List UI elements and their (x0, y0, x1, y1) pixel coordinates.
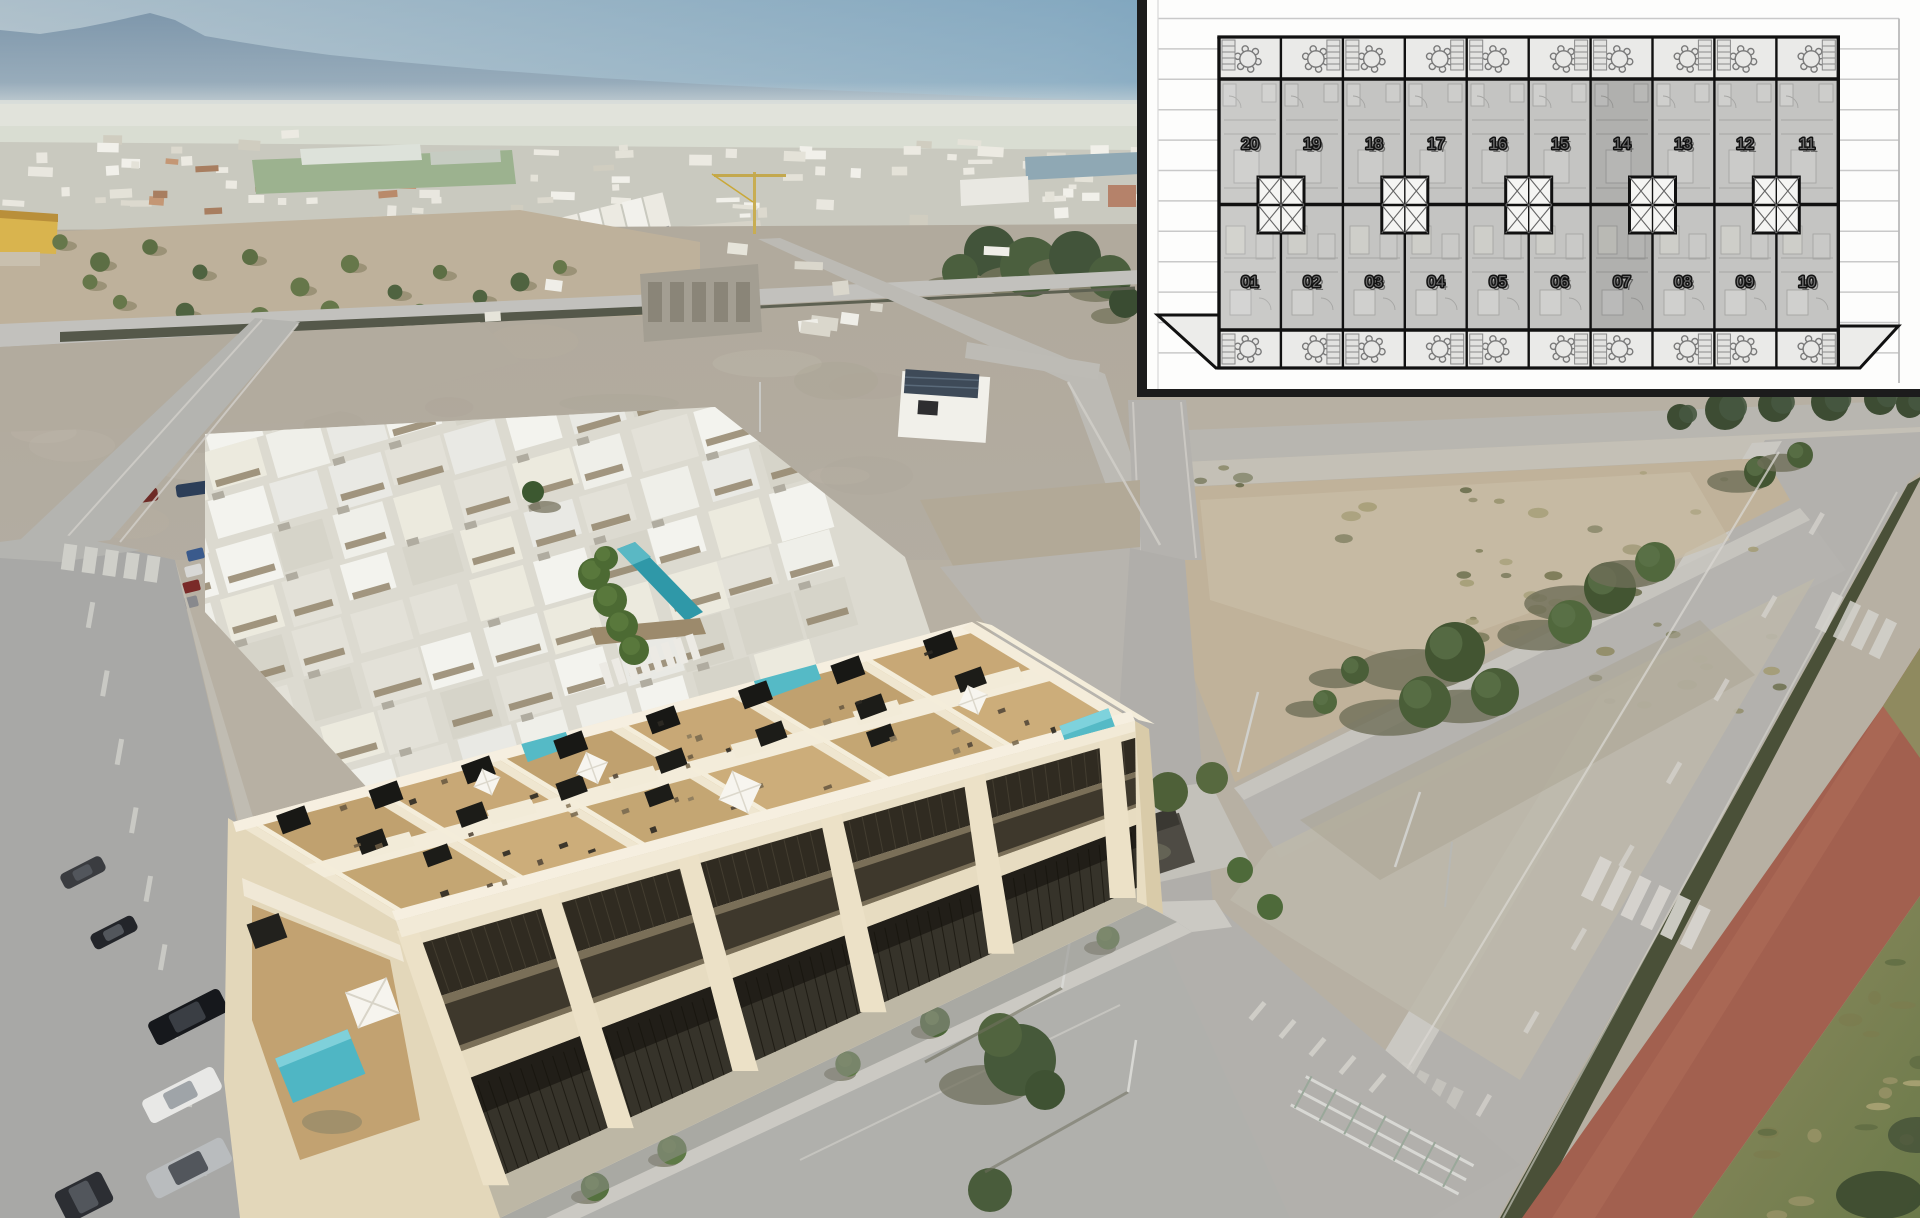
svg-text:01: 01 (1241, 274, 1259, 291)
svg-text:03: 03 (1365, 274, 1383, 291)
svg-text:17: 17 (1427, 136, 1445, 153)
svg-text:14: 14 (1613, 136, 1631, 153)
svg-text:04: 04 (1427, 274, 1445, 291)
svg-text:07: 07 (1613, 274, 1631, 291)
svg-text:13: 13 (1674, 136, 1692, 153)
svg-text:12: 12 (1736, 136, 1754, 153)
svg-text:19: 19 (1303, 136, 1321, 153)
svg-text:05: 05 (1489, 274, 1507, 291)
svg-text:16: 16 (1489, 136, 1507, 153)
svg-text:10: 10 (1798, 274, 1816, 291)
svg-text:09: 09 (1736, 274, 1754, 291)
svg-text:20: 20 (1241, 136, 1259, 153)
svg-text:06: 06 (1551, 274, 1569, 291)
svg-text:15: 15 (1551, 136, 1569, 153)
svg-text:11: 11 (1799, 136, 1816, 153)
svg-text:18: 18 (1365, 136, 1383, 153)
svg-text:08: 08 (1674, 274, 1692, 291)
svg-text:02: 02 (1303, 274, 1321, 291)
